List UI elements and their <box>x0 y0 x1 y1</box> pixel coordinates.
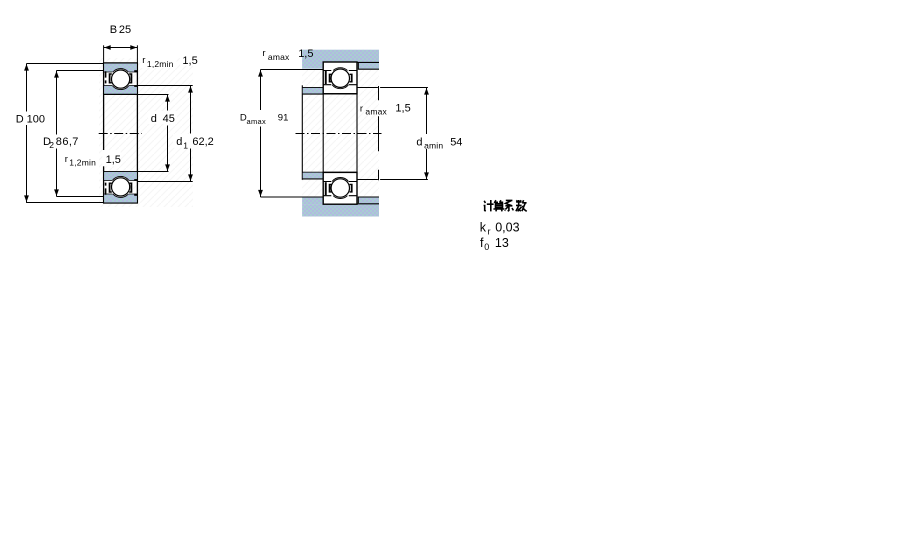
svg-text:r: r <box>488 226 491 236</box>
svg-text:0: 0 <box>484 242 489 252</box>
svg-text:r: r <box>142 55 145 66</box>
svg-text:86,7: 86,7 <box>56 136 79 148</box>
svg-text:100: 100 <box>27 113 45 125</box>
svg-text:r: r <box>262 48 265 59</box>
svg-text:62,2: 62,2 <box>192 136 213 148</box>
svg-text:r: r <box>360 104 363 115</box>
svg-text:r: r <box>65 154 68 165</box>
svg-text:1,5: 1,5 <box>395 103 410 115</box>
svg-text:1,5: 1,5 <box>182 55 197 67</box>
svg-text:0,03: 0,03 <box>495 220 519 234</box>
svg-text:d: d <box>176 136 182 148</box>
svg-text:amax: amax <box>268 52 290 62</box>
svg-text:91: 91 <box>278 112 289 123</box>
svg-text:amax: amax <box>247 117 267 126</box>
svg-text:1,2min: 1,2min <box>147 59 174 69</box>
svg-text:25: 25 <box>119 24 131 36</box>
svg-text:amax: amax <box>365 107 387 117</box>
svg-text:D: D <box>16 113 24 125</box>
svg-text:B: B <box>110 24 117 36</box>
svg-text:2: 2 <box>49 140 54 150</box>
svg-text:k: k <box>480 220 487 234</box>
svg-text:1: 1 <box>183 140 188 150</box>
svg-text:d: d <box>416 136 422 148</box>
svg-text:1,2min: 1,2min <box>69 157 96 167</box>
svg-text:amin: amin <box>424 141 443 151</box>
svg-text:45: 45 <box>163 113 175 125</box>
svg-text:54: 54 <box>450 136 462 148</box>
svg-text:1,5: 1,5 <box>106 154 121 166</box>
svg-text:d: d <box>151 113 157 125</box>
svg-text:1,5: 1,5 <box>298 48 313 60</box>
svg-text:13: 13 <box>495 236 509 250</box>
